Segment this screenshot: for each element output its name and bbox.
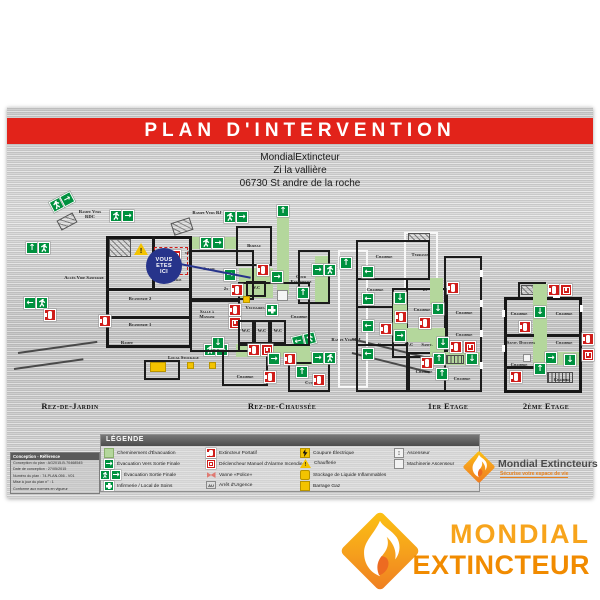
label-sanit: Sanit. — [417, 342, 437, 347]
first-aid-icon — [266, 304, 278, 316]
label-chambre: Chambre — [360, 287, 390, 292]
label-sanit-douches: Sanit. Douches — [504, 340, 538, 345]
arrow-down-icon — [437, 337, 449, 349]
elevator-icon: ↕ — [394, 448, 404, 458]
exit-sign-icon — [312, 264, 336, 276]
you-are-here-marker: VOUS ETES ICI — [146, 248, 182, 284]
arrow-right-icon — [268, 353, 280, 365]
power-cut-icon — [243, 296, 250, 303]
arrow-down-icon — [466, 353, 478, 365]
legend-label: Barrage Gaz — [313, 484, 340, 489]
label-acces-vide-sanitaire: Accès Vide Sanitaire — [64, 275, 104, 280]
stairs — [446, 355, 464, 364]
valve-icon — [206, 470, 216, 480]
arrow-right-icon — [212, 237, 224, 249]
power-cut-icon — [300, 448, 310, 458]
legend-item: Déclencheur Manuel d'Alarme Incendie — [206, 459, 303, 469]
label-2x: 2x — [419, 287, 431, 292]
elevator-machinery-icon — [523, 354, 531, 362]
extinguisher-icon — [284, 353, 296, 365]
arrow-right-icon — [545, 352, 557, 364]
label-chambre: Chambre — [549, 340, 579, 345]
plate-logo-tagline: Sécurise votre espace de vie — [500, 471, 568, 478]
brand-word-mondial: MONDIAL — [330, 519, 590, 549]
extinguisher-icon — [510, 371, 522, 383]
extinguisher-icon — [380, 323, 392, 335]
floor-name-1er-etage: 1er Etage — [412, 401, 484, 411]
legend-label: Infirmerie / Local de Soins — [117, 484, 172, 489]
info-box-header: Conception - Référence — [11, 453, 99, 460]
legend-label: Chaufferie — [314, 461, 336, 466]
legend-item: ↕ Ascenseur — [394, 448, 430, 458]
window-gap — [480, 362, 483, 369]
address-line-3: 06730 St andre de la roche — [7, 177, 593, 190]
legend-label: Déclencheur Manuel d'Alarme Incendie — [219, 462, 303, 467]
label-wc: W.C — [255, 328, 269, 333]
manual-alarm-icon — [206, 459, 216, 469]
label-wc: W.C — [271, 328, 285, 333]
extinguisher-icon — [231, 284, 243, 296]
label-chambre: Chambre — [287, 314, 311, 319]
arrow-left-icon — [362, 348, 374, 360]
wall — [547, 334, 582, 337]
legend-label: Machinerie Ascenseur — [407, 462, 454, 467]
label-buanderie-2: Buanderie 2 — [118, 296, 162, 301]
arrow-down-icon — [432, 303, 444, 315]
arrow-right-icon — [271, 271, 283, 283]
page-title: PLAN D'INTERVENTION — [144, 120, 455, 142]
exit-runner-icon — [36, 297, 48, 309]
marker-line: ICI — [160, 269, 168, 275]
legend-item: Évacuation Sortie Finale — [100, 470, 176, 480]
label-rampe-vers-rdc: Rampe Vers RDC — [74, 209, 106, 220]
info-line: Conforme aux normes en vigueur — [11, 486, 99, 492]
label-rampe: Rampe — [112, 340, 142, 345]
label-chambre: Chambre — [549, 311, 579, 316]
brand-wordmark: MONDIAL EXTINCTEUR — [330, 519, 590, 581]
legend-item: Extincteur Portatif — [206, 448, 257, 458]
arrow-down-icon — [534, 306, 546, 318]
info-box: Conception - Référence Conception du pla… — [10, 452, 100, 494]
legend-item: Cheminement d'Évacuation — [104, 448, 176, 458]
window-gap — [480, 270, 483, 277]
address-block: MondialExtincteur Zi la vallière 06730 S… — [7, 151, 593, 190]
exit-sign-icon — [200, 237, 224, 249]
exit-runner-icon — [38, 242, 50, 254]
stairs-hatch — [109, 239, 131, 257]
legend-label: Extincteur Portatif — [219, 451, 257, 456]
arrow-right-icon — [312, 264, 324, 276]
label-wc: W.C — [239, 328, 253, 333]
evacuation-corridor — [430, 278, 443, 304]
label-chambre: Chambre — [449, 310, 479, 315]
floor-name-rez-de-chaussee: Rez-de-Chaussée — [230, 401, 334, 411]
extinguisher-icon — [450, 341, 462, 353]
arrow-down-icon — [212, 337, 224, 349]
legend-label: Évacuation Vers Sortie Finale — [117, 462, 180, 467]
legend-item: Stockage de Liquide Inflammables — [300, 470, 386, 480]
extinguisher-icon — [257, 264, 269, 276]
extinguisher-icon — [99, 315, 111, 327]
exit-sign-icon — [26, 242, 50, 254]
label-wc: W.C — [247, 285, 265, 290]
emergency-stop-icon: AU — [206, 481, 216, 489]
label-chambre: Chambre — [410, 369, 438, 374]
label-wc: W.C — [401, 342, 417, 347]
legend-label: Arrêt d'Urgence — [219, 483, 252, 488]
elevator-machinery-icon — [394, 459, 404, 469]
arrow-left-icon — [362, 266, 374, 278]
legend-label: Stockage de Liquide Inflammables — [313, 473, 386, 478]
exit-runner-icon — [324, 264, 336, 276]
label-buanderie-1: Buanderie 1 — [118, 322, 162, 327]
arrow-up-icon — [534, 363, 546, 375]
exit-runner-icon — [110, 210, 122, 222]
arrow-right-icon — [111, 470, 121, 480]
label-chambre: Chambre — [447, 376, 477, 381]
arrow-left-icon — [362, 320, 374, 332]
legend-label: Ascenseur — [407, 451, 430, 456]
arrow-left-icon — [24, 297, 36, 309]
arrow-down-icon — [394, 292, 406, 304]
elevator-machinery-icon — [277, 290, 288, 301]
evacuation-path-icon — [104, 448, 114, 458]
label-terrasse: Terrasse — [404, 252, 436, 257]
exit-sign-icon — [24, 297, 48, 309]
window-gap — [480, 330, 483, 337]
extinguisher-icon — [395, 311, 407, 323]
arrow-up-icon — [340, 257, 352, 269]
exit-runner-icon — [200, 237, 212, 249]
label-chambre: Chambre — [366, 254, 402, 259]
label-chambre: Chambre — [548, 377, 576, 382]
title-banner: PLAN D'INTERVENTION — [7, 118, 593, 144]
exit-sign-icon — [100, 470, 110, 480]
label-rampe-vers-rj: Rampe Vers RJ — [192, 210, 222, 215]
manual-alarm-icon — [464, 341, 476, 353]
legend-label: Vanne «Police» — [219, 473, 252, 478]
flammable-storage-icon — [300, 470, 310, 480]
exit-runner-icon — [224, 211, 236, 223]
brand-word-extincteur: EXTINCTEUR — [330, 549, 590, 581]
wall — [106, 316, 192, 319]
boiler-warning-icon: ! — [300, 459, 311, 468]
extinguisher-icon — [419, 317, 431, 329]
extinguisher-icon — [264, 371, 276, 383]
plate-logo-name: Mondial Extincteurs — [498, 458, 598, 470]
room-local-stockage — [144, 360, 180, 380]
arrow-exit-icon — [104, 459, 114, 469]
legend-item: ! Chaufferie — [300, 459, 336, 468]
legend-item: Vanne «Police» — [206, 470, 252, 480]
window-gap — [502, 345, 505, 352]
flame-diamond-icon — [462, 450, 496, 484]
plate-brand-logo: Mondial Extincteurs Sécurise votre espac… — [462, 446, 590, 494]
address-line-1: MondialExtincteur — [7, 151, 593, 164]
exit-sign-icon — [110, 210, 134, 222]
legend-item: Évacuation Vers Sortie Finale — [104, 459, 180, 469]
gas-shutoff-icon — [209, 362, 216, 369]
floor-name-rez-de-jardin: Rez-de-Jardin — [28, 401, 112, 411]
extinguisher-icon — [519, 321, 531, 333]
label-bureau: Bureau — [240, 243, 268, 248]
first-aid-icon — [104, 481, 114, 491]
floor-name-2eme-etage: 2ème Etage — [508, 401, 584, 411]
extinguisher-icon — [44, 309, 56, 321]
manual-alarm-icon — [582, 349, 594, 361]
extinguisher-icon — [313, 374, 325, 386]
extinguisher-icon — [447, 282, 459, 294]
window-gap — [480, 300, 483, 307]
extinguisher-icon — [421, 357, 433, 369]
address-line-2: Zi la vallière — [7, 164, 593, 177]
legend-item: Barrage Gaz — [300, 481, 340, 491]
arrow-up-icon — [277, 205, 289, 217]
arrow-right-icon — [394, 330, 406, 342]
exit-sign-icon — [224, 211, 248, 223]
label-salle-a-manger: Salle à Manger — [193, 309, 221, 320]
legend-label: Coupure Électrique — [313, 451, 354, 456]
window-gap — [580, 305, 583, 312]
extinguisher-icon — [248, 344, 260, 356]
label-chambre: Chambre — [505, 362, 533, 367]
arrow-down-icon — [564, 354, 576, 366]
legend-item: Infirmerie / Local de Soins — [104, 481, 172, 491]
arrow-up-icon — [296, 366, 308, 378]
label-chambre: Chambre — [505, 311, 533, 316]
label-chambre: Chambre — [449, 332, 479, 337]
window-gap — [553, 295, 560, 298]
extinguisher-icon — [582, 333, 594, 345]
label-chambre: Chambre — [372, 342, 400, 347]
legend-title: LÉGENDE — [101, 435, 479, 446]
extinguisher-icon — [206, 448, 216, 458]
legend-item: Coupure Électrique — [300, 448, 354, 458]
exit-sign-icon — [312, 352, 336, 364]
window-gap — [502, 310, 505, 317]
arrow-right-icon — [122, 210, 134, 222]
legend-item: Machinerie Ascenseur — [394, 459, 454, 469]
legend-label: Évacuation Sortie Finale — [124, 473, 176, 478]
arrow-up-icon — [26, 242, 38, 254]
gas-shutoff-icon — [187, 362, 194, 369]
arrow-up-icon — [297, 287, 309, 299]
legend-item: AU Arrêt d'Urgence — [206, 481, 252, 489]
arrow-right-icon — [312, 352, 324, 364]
manual-alarm-icon — [560, 284, 572, 296]
legend-label: Cheminement d'Évacuation — [117, 451, 176, 456]
label-vide-sanitaire: Vide Sanitaire — [152, 287, 190, 292]
gas-shutoff-icon — [300, 481, 310, 491]
wall — [504, 334, 534, 337]
exit-runner-icon — [324, 352, 336, 364]
arrow-right-icon — [236, 211, 248, 223]
screenshot-stage: PLAN D'INTERVENTION MondialExtincteur Zi… — [0, 0, 600, 600]
label-chambre: Chambre — [228, 374, 262, 379]
arrow-left-icon — [362, 293, 374, 305]
arrow-up-icon — [433, 353, 445, 365]
